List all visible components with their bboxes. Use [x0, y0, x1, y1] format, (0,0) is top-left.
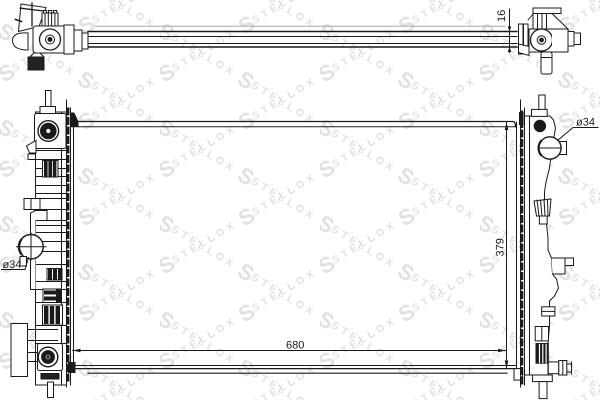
svg-text:ø34: ø34	[576, 117, 595, 129]
svg-text:680: 680	[286, 340, 304, 352]
svg-text:ø34: ø34	[3, 259, 22, 271]
svg-text:16: 16	[496, 10, 508, 22]
svg-text:379: 379	[495, 238, 507, 256]
